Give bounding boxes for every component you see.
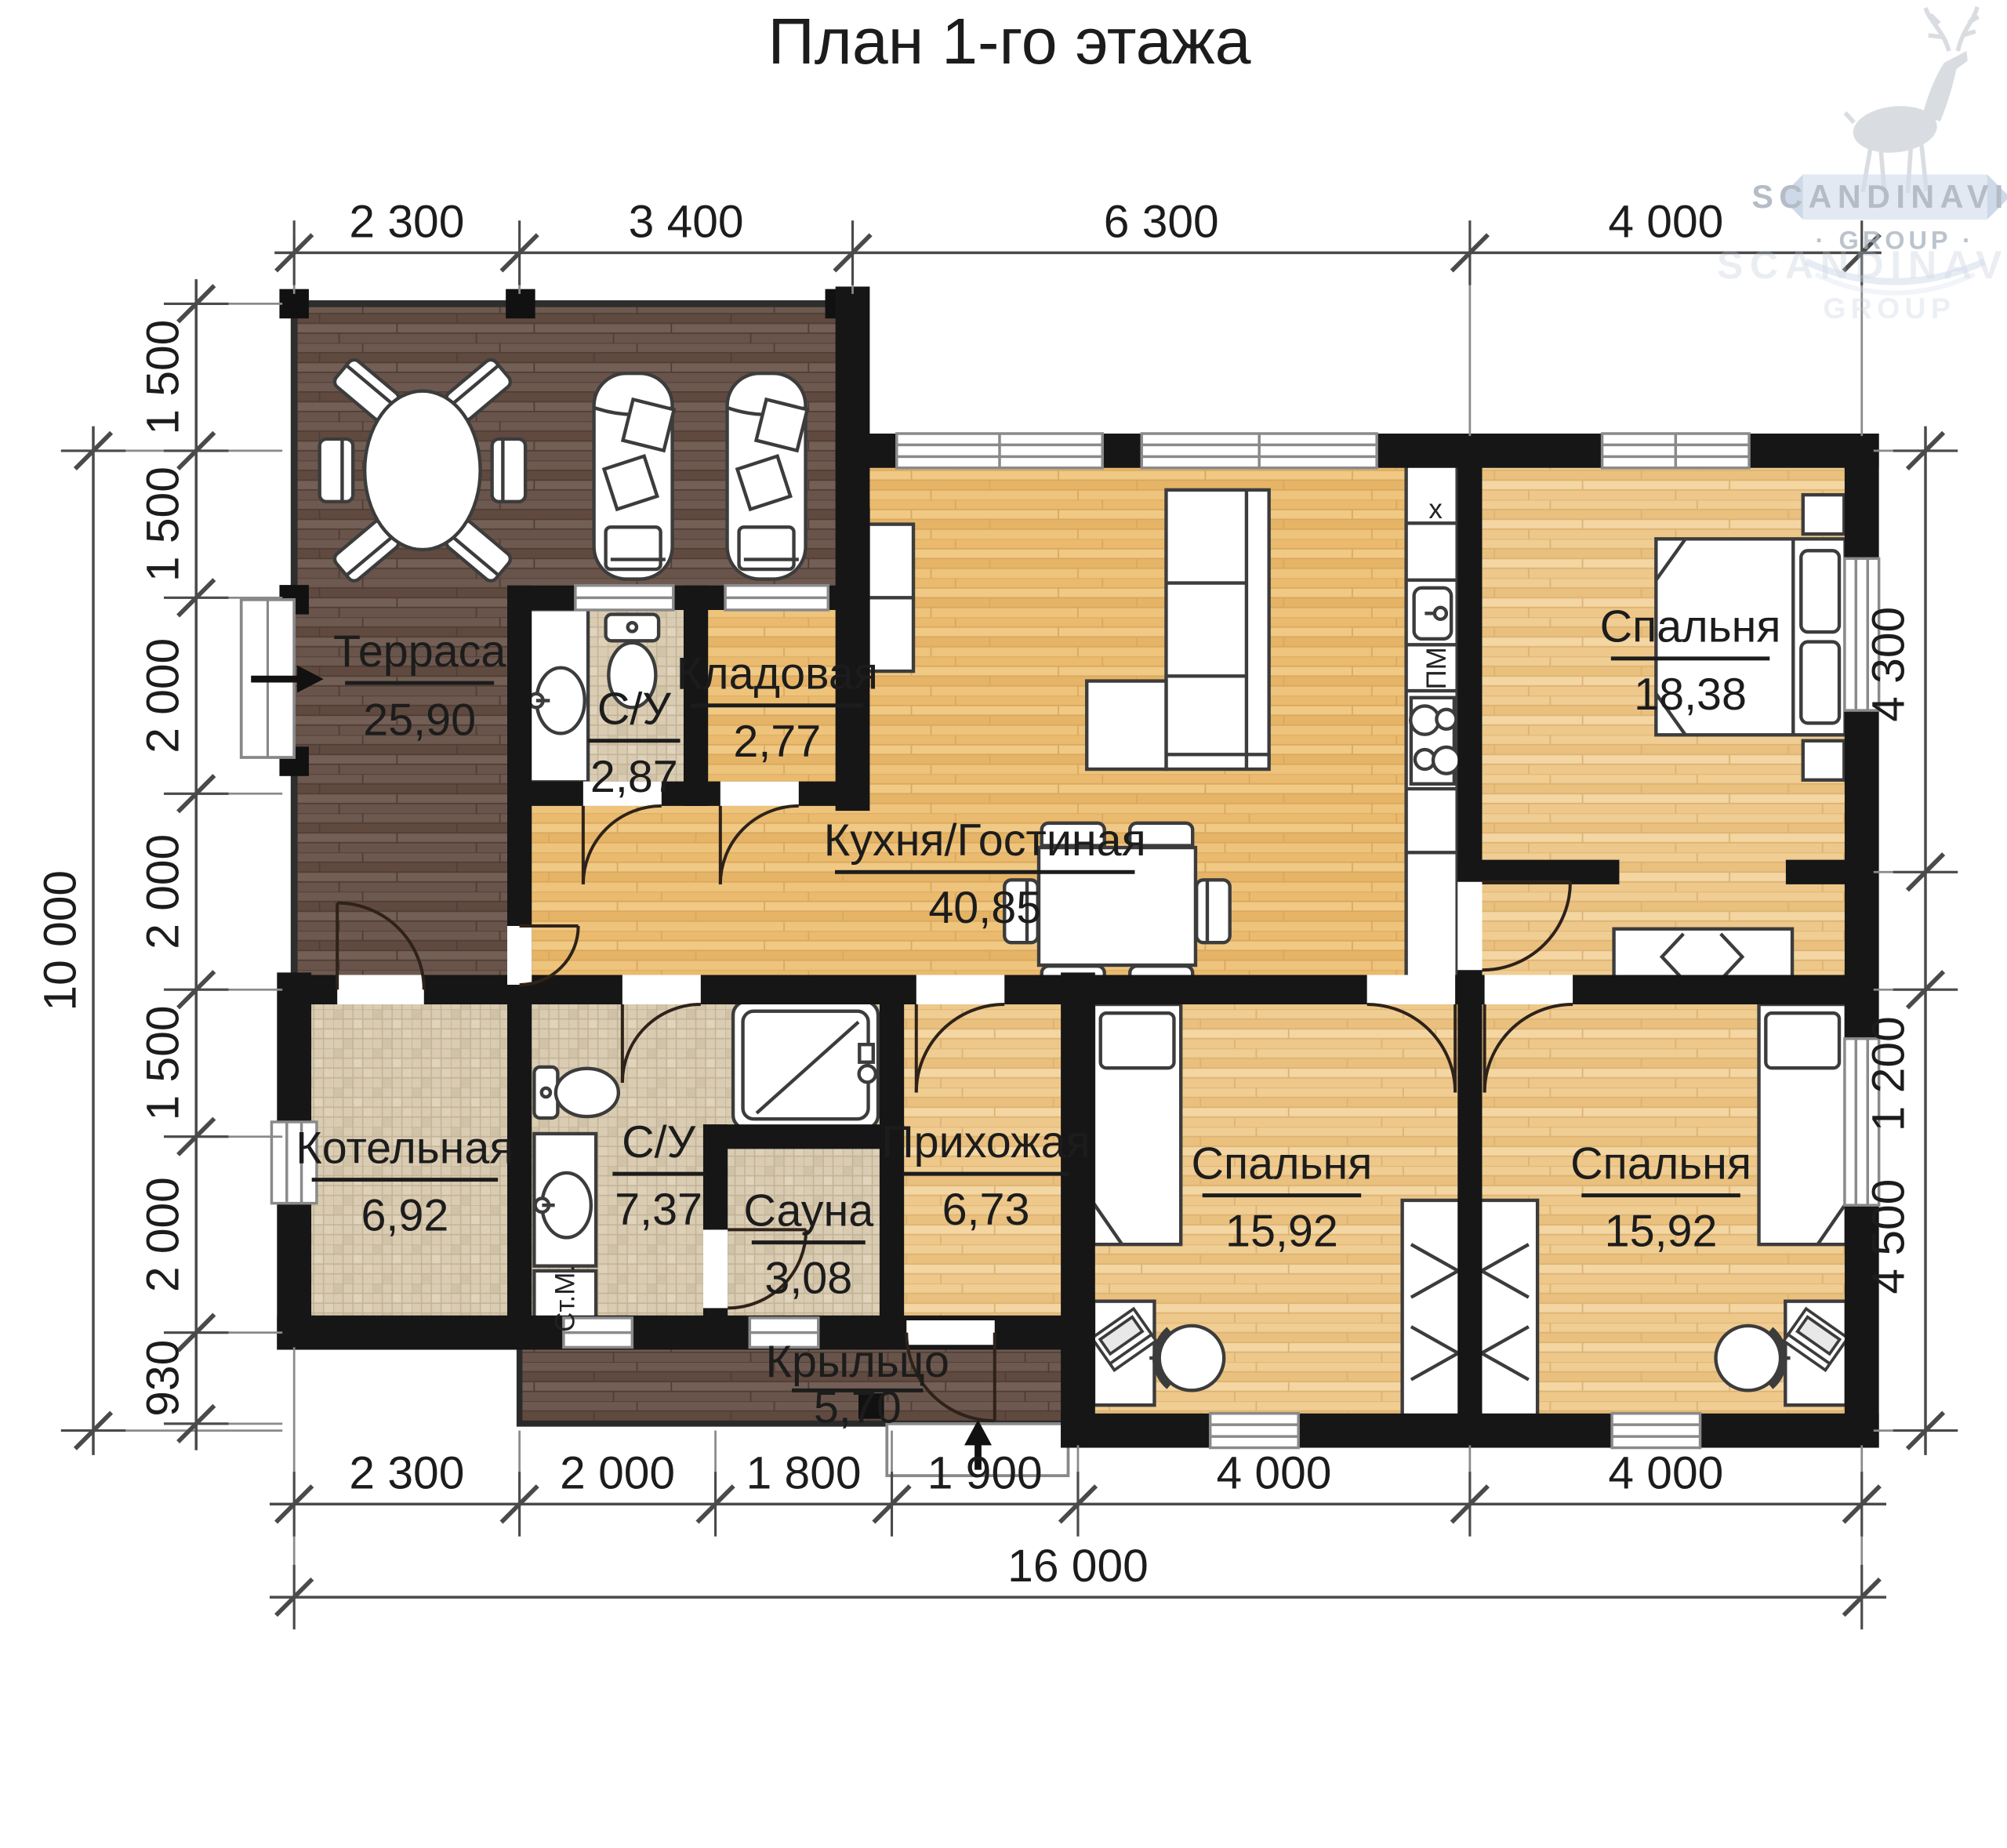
floor-plan: Терраса 25,90 С/У 2,87 Кладовая 2,77 Кух…	[0, 0, 2007, 1848]
dim-left-total: 10 000	[35, 870, 86, 1011]
dim-bottom-3: 1 900	[927, 1447, 1043, 1498]
dim-bottom-1: 2 000	[560, 1447, 675, 1498]
dim-right-2: 4 500	[1864, 1179, 1914, 1294]
terrace-dining-set	[320, 357, 525, 583]
hob-x-label: x	[1428, 494, 1443, 525]
dim-top-1: 3 400	[629, 196, 744, 247]
svg-text:Спальня: Спальня	[1600, 602, 1781, 652]
svg-text:15,92: 15,92	[1605, 1207, 1718, 1257]
nightstand	[1803, 741, 1844, 780]
dim-right-1: 1 200	[1864, 1016, 1914, 1131]
bathroom-sink	[529, 609, 588, 782]
office-chair	[1716, 1326, 1791, 1390]
page-title: План 1-го этажа	[768, 5, 1250, 78]
wardrobe	[1474, 1200, 1537, 1421]
dim-bottom-total: 16 000	[1007, 1541, 1149, 1592]
window	[1612, 1414, 1700, 1448]
dim-left-6: 930	[138, 1340, 189, 1417]
dim-left-0: 1 500	[138, 320, 189, 435]
svg-text:Крыльцо: Крыльцо	[766, 1337, 949, 1387]
window	[575, 586, 673, 610]
logo-name: SCANDINAVIA	[1751, 179, 2007, 215]
svg-text:2,87: 2,87	[590, 752, 678, 802]
svg-text:5,70: 5,70	[814, 1383, 902, 1433]
svg-text:18,38: 18,38	[1634, 670, 1747, 720]
window	[1602, 434, 1749, 468]
svg-text:Терраса: Терраса	[333, 626, 506, 677]
window	[1141, 434, 1377, 468]
logo-group-echo: GROUP	[1823, 292, 1955, 325]
dim-left-4: 1 500	[138, 1005, 189, 1120]
dim-top-2: 6 300	[1104, 196, 1219, 247]
window	[897, 434, 1102, 468]
svg-text:Спальня: Спальня	[1191, 1138, 1372, 1189]
kitchen-sink	[1414, 588, 1451, 639]
dim-left-2: 2 000	[138, 638, 189, 753]
svg-text:40,85: 40,85	[928, 883, 1041, 933]
sofa-ottoman	[1087, 681, 1166, 769]
dim-right-0: 4 300	[1864, 607, 1914, 722]
lounge-chair	[728, 373, 808, 579]
floor-plan-page: Терраса 25,90 С/У 2,87 Кладовая 2,77 Кух…	[0, 0, 2007, 1848]
washing-machine-label: Ст.М.	[550, 1265, 581, 1332]
dim-bottom-2: 1 800	[746, 1447, 862, 1498]
svg-text:7,37: 7,37	[615, 1185, 702, 1235]
single-bed	[1759, 1004, 1846, 1244]
svg-text:15,92: 15,92	[1225, 1207, 1338, 1257]
svg-text:Сауна: Сауна	[743, 1185, 873, 1236]
window	[725, 586, 828, 610]
dim-left-5: 2 000	[138, 1177, 189, 1292]
dim-left-1: 1 500	[138, 467, 189, 582]
svg-text:Спальня: Спальня	[1570, 1138, 1751, 1189]
svg-text:6,73: 6,73	[942, 1185, 1030, 1235]
shower-cabin	[733, 1001, 878, 1128]
svg-text:Кухня/Гостиная: Кухня/Гостиная	[824, 815, 1146, 866]
nightstand	[1803, 495, 1844, 534]
office-chair	[1149, 1326, 1224, 1390]
svg-text:25,90: 25,90	[363, 695, 476, 745]
logo: SCANDINAVIA · GROUP · SCANDINAVIA GROUP	[1717, 7, 2007, 325]
svg-text:6,92: 6,92	[361, 1191, 448, 1241]
dim-top-0: 2 300	[349, 196, 464, 247]
dim-top-3: 4 000	[1608, 196, 1723, 247]
lounge-chair	[594, 373, 674, 579]
dim-left-3: 2 000	[138, 834, 189, 949]
svg-text:2,77: 2,77	[733, 717, 821, 767]
svg-text:С/У: С/У	[622, 1117, 695, 1167]
window	[1210, 1414, 1298, 1448]
svg-text:Кладовая: Кладовая	[677, 649, 878, 699]
svg-text:С/У: С/У	[597, 684, 671, 735]
desk	[1784, 1302, 1848, 1405]
dim-bottom-4: 4 000	[1216, 1447, 1331, 1498]
kitchen-counter	[1406, 456, 1460, 980]
round-table	[365, 391, 480, 550]
deer-icon	[1845, 7, 1979, 193]
desk	[1092, 1302, 1156, 1405]
toilet	[534, 1067, 618, 1118]
svg-text:Котельная: Котельная	[296, 1123, 514, 1173]
svg-text:3,08: 3,08	[764, 1254, 852, 1304]
wardrobe	[1403, 1200, 1466, 1421]
bathroom-sink	[534, 1134, 596, 1266]
stove	[1410, 698, 1459, 784]
svg-text:Прихожая: Прихожая	[881, 1117, 1090, 1167]
dim-bottom-0: 2 300	[349, 1447, 464, 1498]
dishwasher-label: ПМ	[1421, 647, 1452, 689]
single-bed	[1094, 1004, 1181, 1244]
dim-bottom-5: 4 000	[1608, 1447, 1723, 1498]
